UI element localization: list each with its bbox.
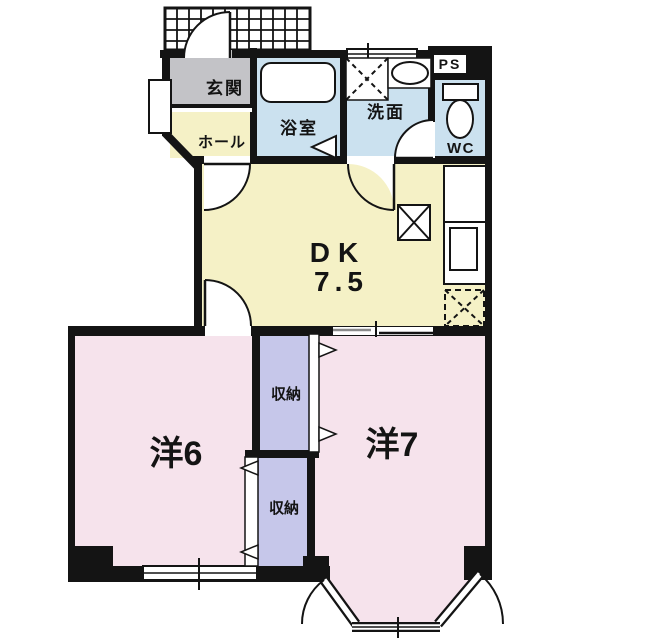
label-ps: PS — [439, 56, 462, 72]
label-washroom: 洗面 — [367, 102, 405, 122]
toilet-bowl — [447, 100, 473, 138]
doorway-dk-western6 — [205, 326, 251, 336]
shoe-cabinet — [149, 80, 171, 133]
label-dk-size: 7.5 — [314, 266, 368, 297]
doorway-washroom-dk — [347, 156, 394, 164]
storage-upper-doors — [309, 334, 319, 452]
kitchen-counter — [444, 166, 486, 284]
genkan-step-edge — [170, 104, 252, 108]
label-genkan: 玄関 — [206, 78, 244, 98]
wall-corner-notch — [75, 546, 113, 566]
wash-basin — [388, 58, 431, 88]
washing-machine-space — [346, 58, 388, 100]
wall-dk-left — [194, 156, 202, 336]
genkan-step-highlight — [170, 108, 252, 112]
basin-bowl — [392, 62, 428, 84]
label-dk: DK — [310, 237, 366, 268]
label-western6: 洋6 — [150, 435, 203, 473]
kitchen-sink — [450, 228, 477, 270]
label-storage-lower: 収納 — [269, 499, 299, 517]
wall-storage-left — [252, 332, 260, 454]
label-wc: WC — [447, 140, 475, 157]
wall-left-outer — [68, 326, 75, 582]
label-hall: ホール — [198, 134, 246, 151]
wall-storage-right — [307, 455, 315, 568]
wall-right-outer — [485, 46, 492, 578]
wall-bay-left-block — [303, 556, 329, 582]
label-western7: 洋7 — [366, 426, 419, 464]
floor-plan-canvas: 玄関 ホール 浴室 洗面 WC PS DK 7.5 洋6 洋7 収納 収納 — [0, 0, 652, 640]
kitchen-equipment-box — [398, 205, 430, 240]
wall-genkan-bath — [250, 48, 257, 158]
room-western7 — [311, 332, 487, 627]
label-storage-upper: 収納 — [271, 385, 301, 403]
bathtub — [261, 63, 335, 102]
label-bathroom: 浴室 — [280, 118, 318, 138]
toilet-tank — [443, 84, 478, 100]
floor-plan: 玄関 ホール 浴室 洗面 WC PS DK 7.5 洋6 洋7 収納 収納 — [0, 0, 652, 640]
